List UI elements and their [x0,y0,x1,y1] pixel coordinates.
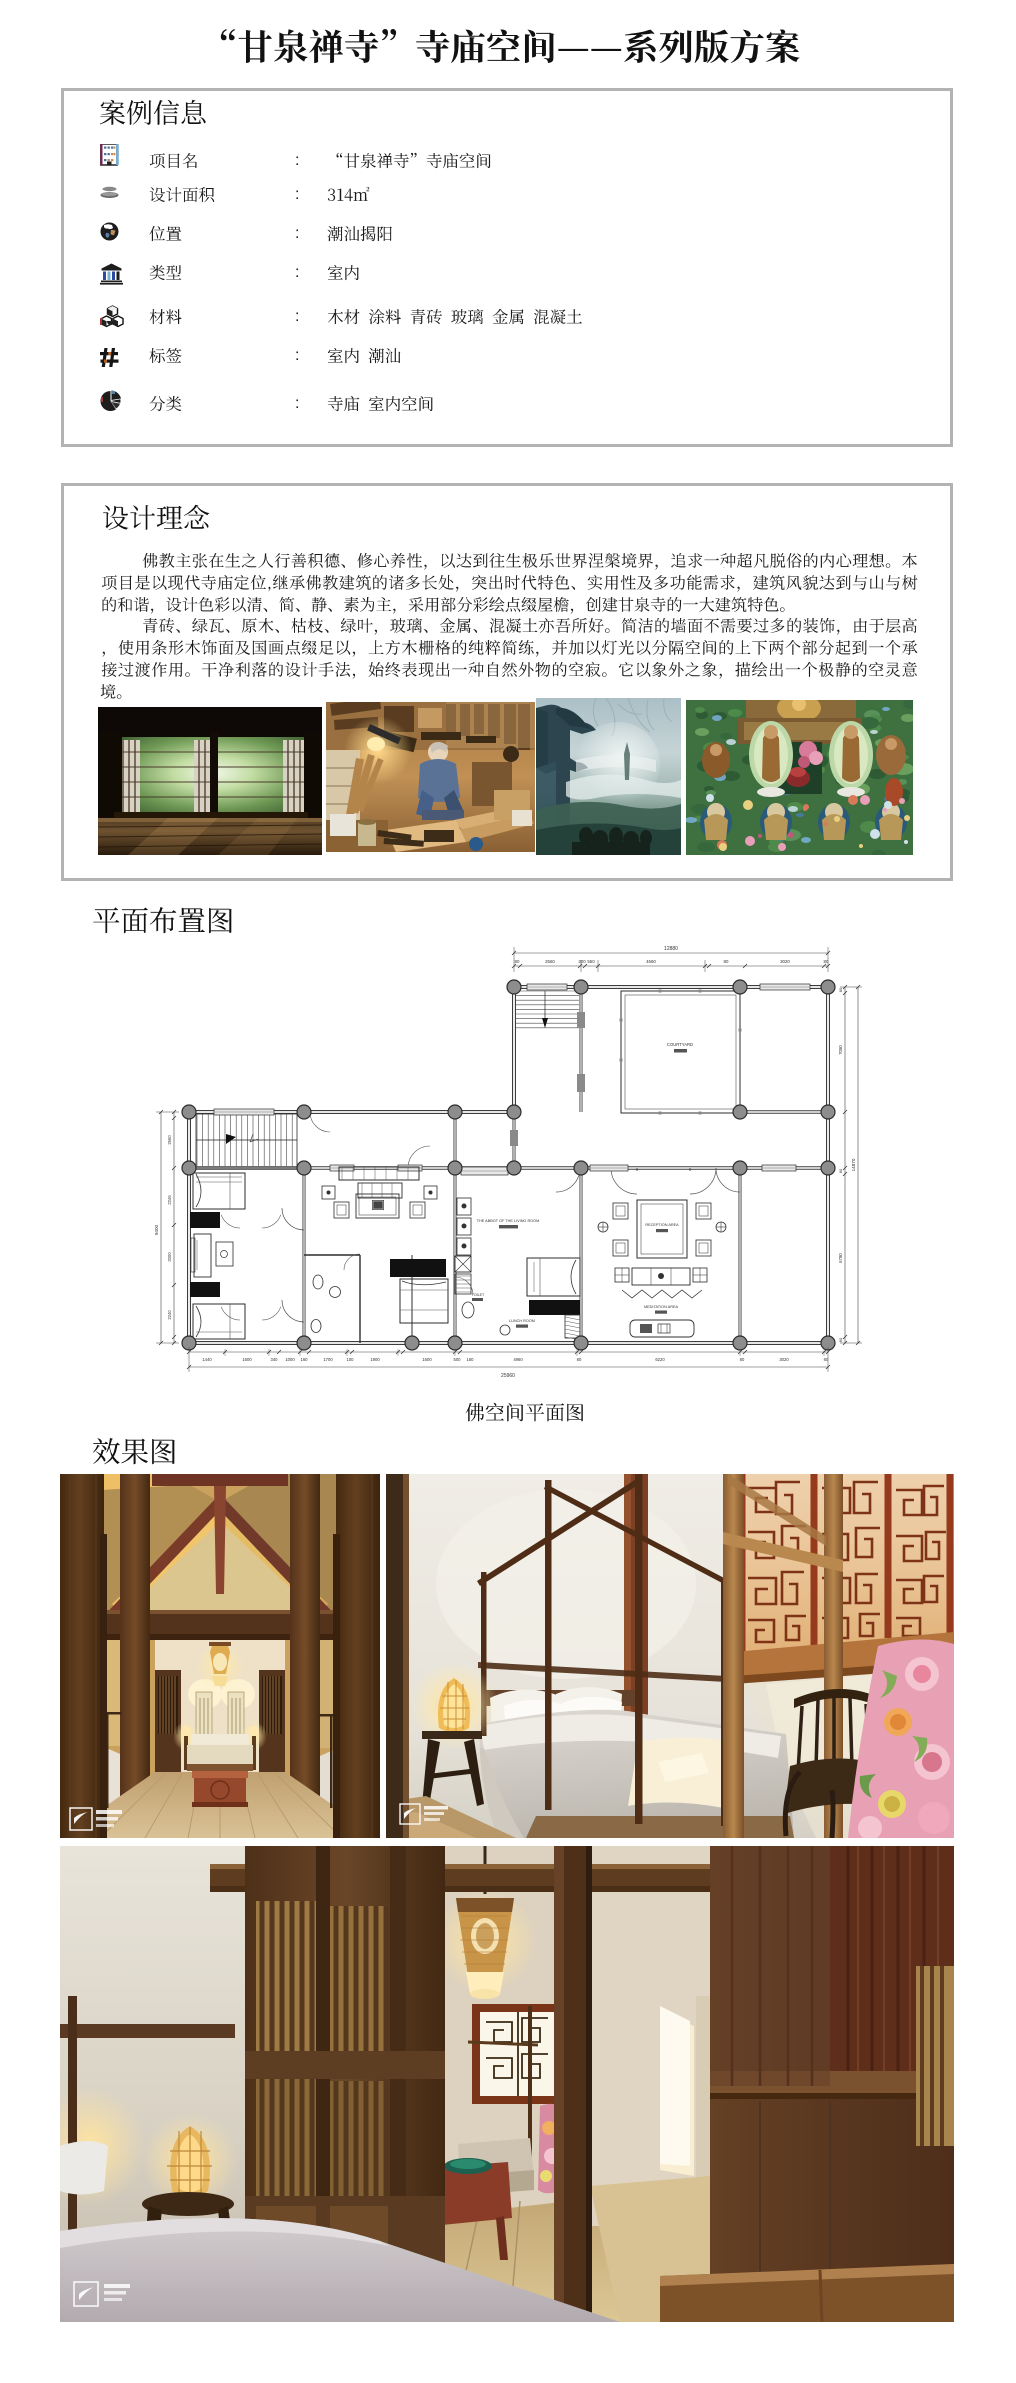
svg-text:9400: 9400 [154,1224,159,1235]
svg-text:80: 80 [577,1357,582,1362]
svg-text:340: 340 [271,1357,279,1362]
svg-text:1440: 1440 [202,1357,212,1362]
svg-text:550: 550 [587,959,595,964]
svg-text:3020: 3020 [779,1357,789,1362]
svg-text:80: 80 [838,1337,843,1342]
svg-text:1600: 1600 [242,1357,252,1362]
svg-text:80: 80 [838,1168,843,1173]
svg-text:80: 80 [740,1357,745,1362]
svg-text:3020: 3020 [780,959,790,964]
svg-text:6780: 6780 [838,1253,843,1263]
svg-text:2240: 2240 [167,1310,172,1320]
svg-text:2000: 2000 [167,1252,172,1262]
svg-text:100: 100 [347,1357,355,1362]
svg-text:THE ABBOT OF THE LIVING ROOM: THE ABBOT OF THE LIVING ROOM [477,1219,540,1223]
svg-text:MEDITATION AREA: MEDITATION AREA [644,1305,679,1309]
svg-text:160: 160 [467,1357,475,1362]
svg-text:1700: 1700 [323,1357,333,1362]
svg-text:4660: 4660 [646,959,656,964]
svg-text:LUNCH ROOM: LUNCH ROOM [509,1319,535,1323]
svg-text:500: 500 [454,1357,462,1362]
svg-text:2560: 2560 [545,959,555,964]
svg-text:COURTYARD: COURTYARD [667,1042,693,1047]
svg-text:6220: 6220 [655,1357,665,1362]
svg-text:2246: 2246 [167,1195,172,1205]
svg-text:1000: 1000 [285,1357,295,1362]
svg-text:RECEPTION AREA: RECEPTION AREA [645,1223,679,1227]
svg-text:1600: 1600 [422,1357,432,1362]
svg-text:7050: 7050 [838,1045,843,1055]
svg-text:1900: 1900 [370,1357,380,1362]
svg-text:14870: 14870 [851,1158,856,1171]
svg-text:4960: 4960 [513,1357,523,1362]
svg-text:25960: 25960 [501,1373,515,1379]
svg-text:200: 200 [578,959,586,964]
svg-text:TOILET: TOILET [472,1293,485,1297]
svg-text:80: 80 [724,959,729,964]
svg-text:80: 80 [838,987,843,992]
svg-text:160: 160 [301,1357,309,1362]
svg-text:12880: 12880 [664,946,678,952]
svg-text:2660: 2660 [167,1135,172,1145]
svg-text:80: 80 [515,959,520,964]
